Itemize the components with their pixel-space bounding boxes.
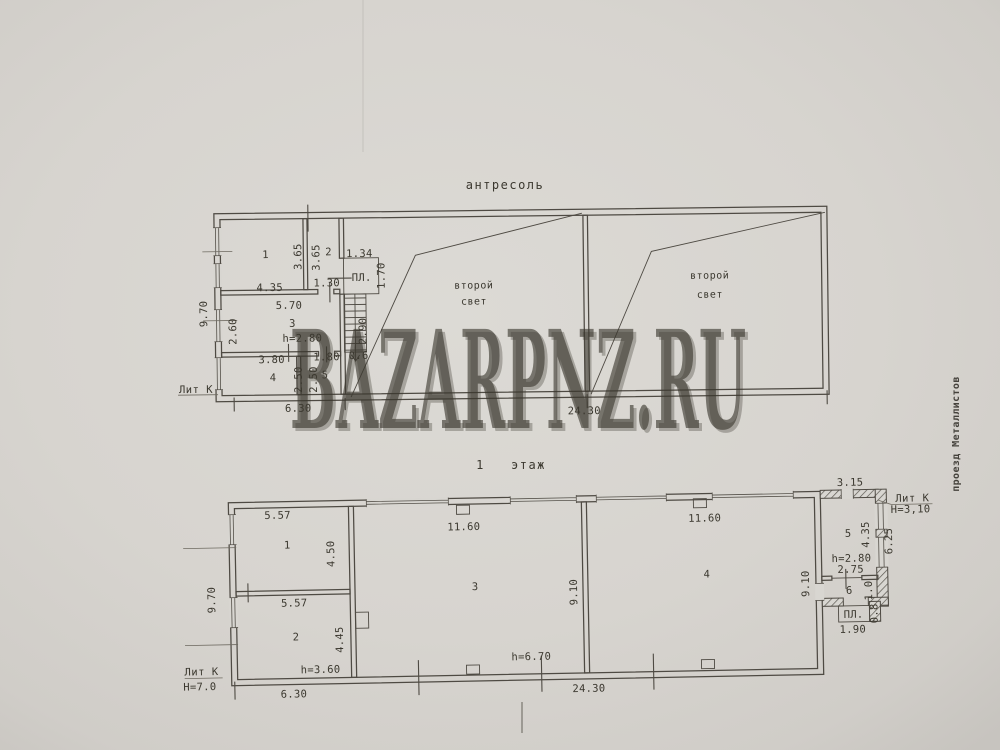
mezzanine-title: антресоль xyxy=(466,178,545,192)
mezz-closet-label: ПЛ. xyxy=(352,272,372,284)
watermark: BAZARPNZ.RU BAZARPNZ.RU xyxy=(290,302,749,464)
ff-room6-number: 6 xyxy=(846,585,853,597)
ff-dim-bottom-right: 24.30 xyxy=(572,683,605,696)
mezz-lit-label: Лит К xyxy=(179,384,213,396)
watermark-text: BAZARPNZ.RU xyxy=(290,302,746,461)
ff-room2-number: 2 xyxy=(293,631,300,643)
mezz-room4-number: 4 xyxy=(270,372,276,384)
ff-height-right: Н=3,10 xyxy=(891,503,931,516)
ff-room4-number: 4 xyxy=(703,569,710,581)
mezz-dim-left-height: 9.70 xyxy=(198,301,210,328)
mezz-room2-number: 2 xyxy=(325,246,331,258)
ff-room3-number: 3 xyxy=(472,581,479,593)
mezz-dim-room2-width: 1.30 xyxy=(313,277,340,289)
ff-ext-bottom-wall-left xyxy=(822,598,843,606)
ff-dim-ext-right: 6.25 xyxy=(883,528,896,555)
ff-dim-room2-depth: 4.45 xyxy=(334,626,347,653)
ff-room2-ceiling-height: h=3.60 xyxy=(301,664,341,677)
ff-dim-room3-width: 11.60 xyxy=(447,521,480,534)
ff-dim-room1-depth: 4.50 xyxy=(325,540,338,567)
ff-room1-number: 1 xyxy=(284,540,291,552)
ff-dim-room2-width: 5.57 xyxy=(281,597,308,610)
mezz-room1-number: 1 xyxy=(262,249,268,261)
ff-dim-landing-width: 1.90 xyxy=(839,624,866,637)
ff-dim-room1-width: 5.57 xyxy=(264,510,291,523)
ff-dim-ext-top: 3.15 xyxy=(837,477,864,490)
ff-dim-room4-width: 11.60 xyxy=(688,512,721,525)
floorplan-scan: антресоль xyxy=(0,0,1000,750)
ff-room5-number: 5 xyxy=(845,528,852,540)
street-name-label: проезд Металлистов xyxy=(951,376,962,492)
mezz-dim-room1-height: 3.65 xyxy=(292,243,304,270)
ff-height-left: Н=7.0 xyxy=(183,681,216,694)
ff-lit-left-label: Лит К xyxy=(184,666,219,679)
mezz-area1-label-line1: второй xyxy=(454,279,493,291)
ff-landing-label: ПЛ. xyxy=(844,609,864,621)
mezz-dim-room4-width: 3.80 xyxy=(258,354,285,366)
mezz-dim-closet-width: 1.34 xyxy=(346,248,373,260)
ff-hall-ceiling-height: h=6.70 xyxy=(511,651,551,664)
ff-dim-room3-depth: 9.10 xyxy=(568,579,581,606)
ff-dim-bottom-left: 6.30 xyxy=(281,688,308,701)
ff-dim-room6-depth: 1.0 xyxy=(863,580,875,600)
ff-dim-room5-depth: 4.35 xyxy=(860,521,873,548)
mezz-dim-room2-height: 3.65 xyxy=(310,244,322,271)
mezz-dim-closet-height: 1.70 xyxy=(375,262,387,289)
mezz-area2-label-line2: свет xyxy=(697,290,723,301)
ff-dim-room5-width: 2.75 xyxy=(837,564,864,577)
mezz-area2-label-line1: второй xyxy=(690,269,729,281)
ff-dim-left-height: 9.70 xyxy=(206,587,219,614)
mezz-dim-room3-depth: 2.60 xyxy=(227,318,239,345)
ff-dim-landing-depth: 0.8 xyxy=(868,603,880,623)
ff-dim-room4-depth: 9.10 xyxy=(800,570,813,597)
mezz-dim-room1-width: 4.35 xyxy=(256,282,283,294)
